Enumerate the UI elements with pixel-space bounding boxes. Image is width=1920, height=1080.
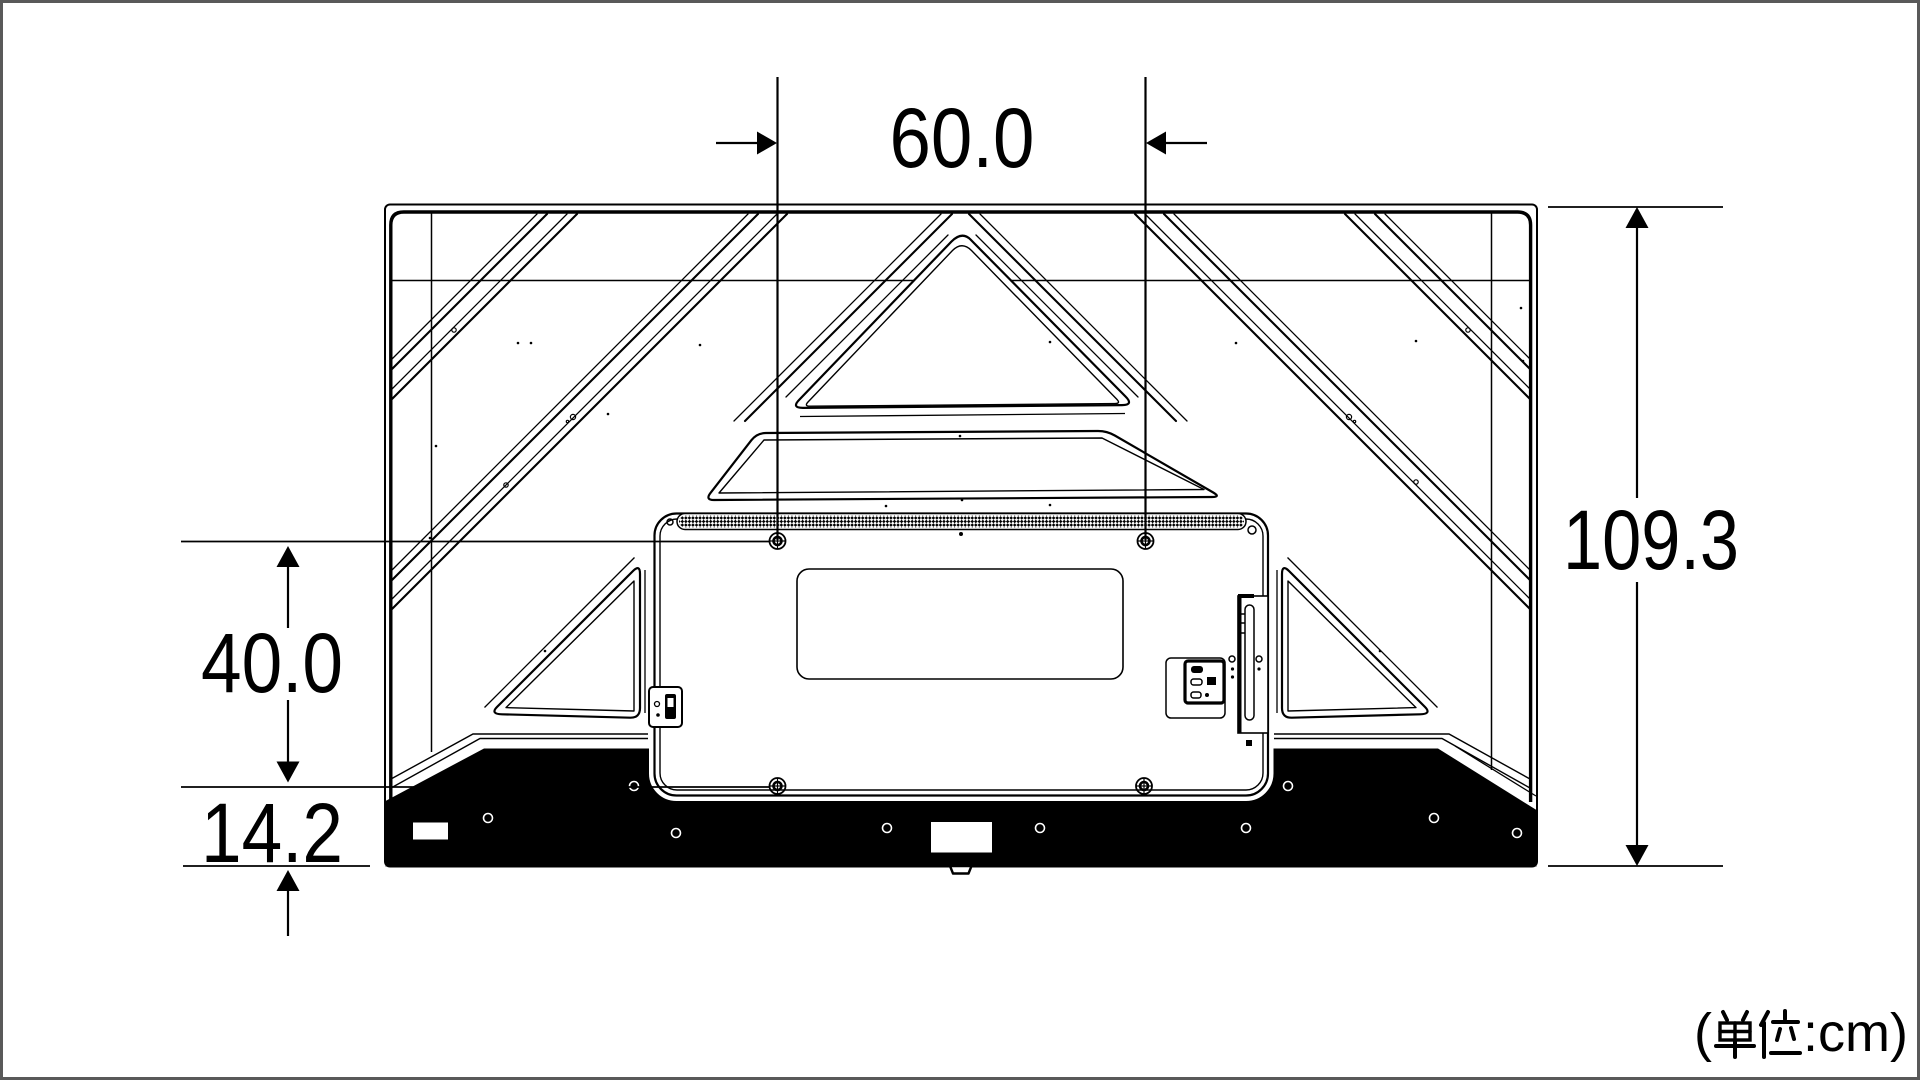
- svg-text:60.0: 60.0: [890, 91, 1035, 185]
- svg-text::cm): :cm): [1803, 1003, 1908, 1063]
- svg-text:40.0: 40.0: [201, 616, 343, 710]
- svg-text:14.2: 14.2: [201, 786, 343, 880]
- svg-text:(: (: [1694, 1003, 1712, 1063]
- svg-text:109.3: 109.3: [1563, 493, 1739, 587]
